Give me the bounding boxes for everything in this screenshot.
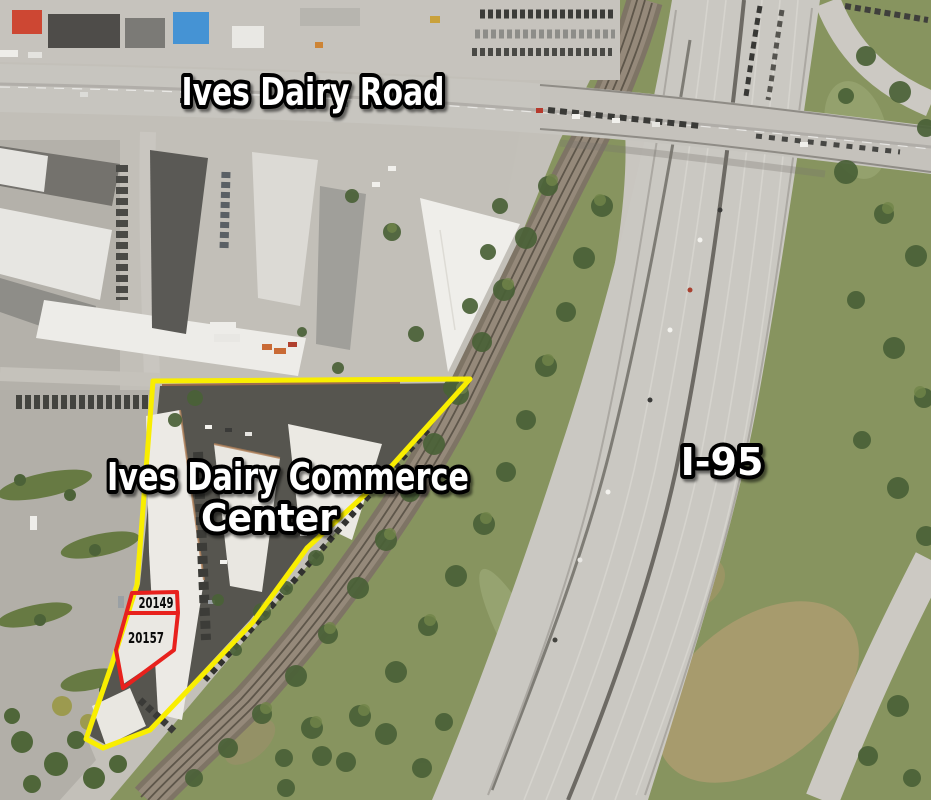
aerial-photo: 20149 20157 Ives Dairy Road Ives Dairy C… [0,0,931,800]
parcel-label-20157: 20157 [128,629,164,647]
aerial-map: 20149 20157 Ives Dairy Road Ives Dairy C… [0,0,931,800]
commerce-center-label-line1: Ives Dairy Commerce [107,455,469,499]
commerce-center-label-line2: Center [201,496,337,540]
highway-label: I-95 [681,440,764,484]
road-label: Ives Dairy Road [182,70,445,114]
parcel-label-20149: 20149 [139,594,174,612]
